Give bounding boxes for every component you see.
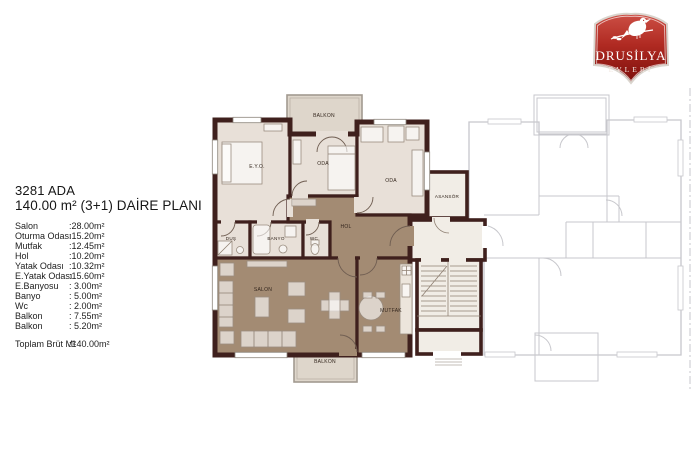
area-row: Balkon: 7.55m² — [15, 311, 76, 321]
core-landing — [410, 220, 485, 260]
dus-door-gap — [221, 219, 235, 225]
area-value: :28.00m² — [69, 221, 105, 231]
bed — [328, 146, 355, 190]
neighbor-door-gap — [482, 226, 488, 248]
window — [374, 119, 406, 124]
armchair — [288, 282, 305, 296]
faded-window — [617, 352, 657, 357]
label-balkon-top: BALKON — [313, 113, 335, 119]
area-row: E.Yatak Odası:15.60m² — [15, 271, 76, 281]
salon-door-gap — [338, 255, 355, 261]
neighbor-door-arc — [488, 226, 503, 246]
area-label: Balkon — [15, 321, 43, 331]
wc-door-gap — [306, 219, 319, 225]
area-value: : 3.00m² — [69, 281, 102, 291]
faded-window — [678, 140, 683, 176]
bed-pillows — [222, 144, 231, 182]
dresser — [264, 124, 282, 131]
faded-balcony-top — [534, 95, 609, 135]
sink — [402, 284, 410, 297]
window — [362, 352, 405, 357]
area-value: :10.32m² — [69, 261, 105, 271]
faded-balcony-bottom — [535, 333, 598, 381]
faded-partitions — [484, 120, 681, 355]
sofa — [241, 331, 296, 347]
faded-window — [485, 352, 515, 357]
faded-outline — [469, 120, 681, 355]
window — [233, 117, 261, 122]
stair-opening — [421, 257, 441, 263]
dining-table — [329, 292, 340, 319]
area-label: Salon — [15, 221, 38, 231]
stair-opening — [449, 257, 466, 263]
coffee-table — [255, 297, 269, 317]
area-value: : 2.00m² — [69, 301, 102, 311]
hall-console — [292, 199, 316, 206]
area-row: Balkon: 5.20m² — [15, 321, 76, 331]
dus-sink — [237, 247, 244, 254]
area-label: Mutfak — [15, 241, 42, 251]
oda-right-door-gap — [354, 197, 360, 213]
bathroom-sink — [279, 245, 287, 253]
window — [424, 152, 429, 190]
entrance-door-gap — [407, 226, 414, 246]
label-mutfak: MUTFAK — [380, 308, 402, 314]
sofa — [412, 150, 423, 196]
faded-balcony-top-inner — [537, 98, 606, 132]
page: BALKON E.Y.O. ODA ODA ASANSÖR HOL DUŞ BA… — [0, 0, 700, 466]
stairwell — [417, 260, 481, 330]
label-oda-right: ODA — [385, 178, 397, 184]
window — [235, 352, 287, 357]
banyo-door-gap — [257, 219, 271, 225]
dresser — [361, 127, 383, 142]
window — [212, 140, 217, 174]
area-row: Yatak Odası:10.32m² — [15, 261, 76, 271]
area-table: Salon:28.00m² Oturma Odası:15.20m² Mutfa… — [15, 221, 76, 349]
label-balkon-bottom: BALKON — [314, 359, 336, 365]
armchair — [220, 263, 234, 276]
brand-name: DRUSİLYA — [596, 48, 667, 63]
area-value: :15.20m² — [69, 231, 105, 241]
area-label: Hol — [15, 251, 29, 261]
faded-doors — [535, 134, 622, 351]
label-oda-mid: ODA — [317, 161, 329, 167]
label-wc: WC — [310, 236, 319, 241]
area-row: Banyo: 5.00m² — [15, 291, 76, 301]
area-value: :10.20m² — [69, 251, 105, 261]
area-label: Banyo — [15, 291, 41, 301]
building-entrance-gap — [433, 351, 461, 357]
area-total-row: Toplam Brüt M²:140.00m² — [15, 339, 76, 349]
chair — [376, 326, 385, 332]
area-value: : 5.00m² — [69, 291, 102, 301]
chair — [376, 292, 385, 298]
entrance-steps — [435, 359, 462, 365]
faded-window — [678, 266, 683, 310]
label-salon: SALON — [254, 287, 272, 293]
area-label: Balkon — [15, 311, 43, 321]
chair — [363, 326, 372, 332]
area-value: : 5.20m² — [69, 321, 102, 331]
area-value: :15.60m² — [69, 271, 105, 281]
brand-subname: EVLERİ — [609, 65, 654, 74]
area-row: Hol:10.20m² — [15, 251, 76, 261]
label-banyo: BANYO — [267, 236, 285, 241]
toilet — [311, 244, 319, 255]
area-label: Oturma Odası — [15, 231, 72, 241]
wardrobe — [388, 126, 404, 142]
area-row: Mutfak:12.45m² — [15, 241, 76, 251]
balcony-door-gap — [316, 131, 348, 137]
area-value: : 7.55m² — [69, 311, 102, 321]
armchair — [288, 309, 305, 323]
area-label: E.Banyosu — [15, 281, 59, 291]
wardrobe — [293, 140, 301, 164]
washing-machine — [285, 226, 296, 237]
wardrobe — [406, 127, 419, 140]
mutfak-door-gap — [360, 255, 377, 261]
area-row: Salon:28.00m² — [15, 221, 76, 231]
area-row: E.Banyosu: 3.00m² — [15, 281, 76, 291]
plan-title: 140.00 m² (3+1) DAİRE PLANI — [15, 198, 202, 214]
area-value: :12.45m² — [69, 241, 105, 251]
brand-badge: DRUSİLYA EVLERİ — [591, 8, 671, 90]
chair — [363, 292, 372, 298]
label-hol: HOL — [340, 224, 351, 230]
block-title: 3281 ADA — [15, 183, 202, 198]
label-eyo: E.Y.O. — [249, 164, 265, 170]
faded-window — [488, 119, 521, 124]
oda-mid-door-gap — [292, 193, 308, 199]
tv-console — [247, 261, 287, 267]
area-label: Yatak Odası — [15, 261, 64, 271]
label-asansor: ASANSÖR — [435, 193, 460, 199]
faded-window — [634, 117, 667, 122]
total-value: :140.00m² — [69, 339, 110, 349]
balcony-bottom-door-gap — [339, 349, 357, 356]
info-panel: 3281 ADA 140.00 m² (3+1) DAİRE PLANI — [15, 183, 202, 214]
side-table — [220, 331, 234, 344]
area-label: E.Yatak Odası — [15, 271, 72, 281]
label-dus: DUŞ — [226, 236, 236, 241]
area-row: Wc: 2.00m² — [15, 301, 76, 311]
sofa — [219, 281, 233, 327]
core-entry — [417, 330, 481, 354]
area-row: Oturma Odası:15.20m² — [15, 231, 76, 241]
window — [212, 266, 217, 310]
area-label: Wc — [15, 301, 28, 311]
total-label: Toplam Brüt M² — [15, 339, 76, 349]
